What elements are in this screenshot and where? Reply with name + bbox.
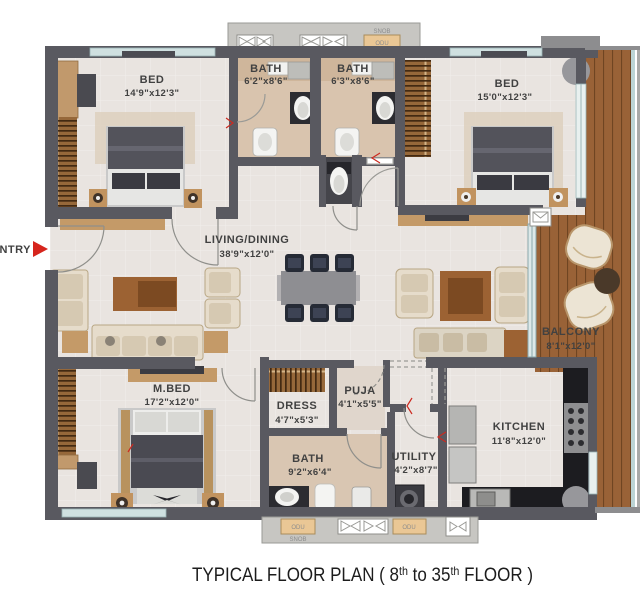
svg-text:LIVING/DINING: LIVING/DINING <box>205 234 290 246</box>
svg-text:38'9"x12'0": 38'9"x12'0" <box>220 249 275 260</box>
svg-text:M.BED: M.BED <box>153 383 191 395</box>
svg-text:15'0"x12'3": 15'0"x12'3" <box>478 92 533 103</box>
svg-text:4'2"x8'7": 4'2"x8'7" <box>394 465 438 476</box>
svg-text:11'8"x12'0": 11'8"x12'0" <box>492 436 546 447</box>
svg-text:BATH: BATH <box>337 63 369 75</box>
svg-text:6'2"x8'6": 6'2"x8'6" <box>244 76 288 87</box>
svg-text:4'7"x5'3": 4'7"x5'3" <box>275 415 319 426</box>
svg-text:8'1"x12'0": 8'1"x12'0" <box>546 341 595 352</box>
svg-text:PUJA: PUJA <box>344 385 375 397</box>
svg-text:UTILITY: UTILITY <box>391 451 436 463</box>
svg-text:DRESS: DRESS <box>277 400 317 412</box>
svg-text:BATH: BATH <box>292 453 324 465</box>
svg-text:BED: BED <box>495 78 520 90</box>
svg-text:6'3"x8'6": 6'3"x8'6" <box>331 76 375 87</box>
svg-text:14'9"x12'3": 14'9"x12'3" <box>125 88 180 99</box>
svg-text:4'1"x5'5": 4'1"x5'5" <box>338 399 382 410</box>
svg-text:17'2"x12'0": 17'2"x12'0" <box>145 397 200 408</box>
svg-text:SNOB: SNOB <box>289 537 306 543</box>
svg-text:9'2"x6'4": 9'2"x6'4" <box>288 467 332 478</box>
svg-text:ODU: ODU <box>402 525 415 531</box>
svg-text:TYPICAL FLOOR PLAN ( 8th to 35: TYPICAL FLOOR PLAN ( 8th to 35th FLOOR ) <box>192 564 533 586</box>
svg-text:BALCONY: BALCONY <box>542 326 600 338</box>
svg-text:SNOB: SNOB <box>373 29 390 35</box>
svg-text:KITCHEN: KITCHEN <box>493 421 545 433</box>
svg-text:BATH: BATH <box>250 63 282 75</box>
svg-text:ENTRY: ENTRY <box>0 244 31 256</box>
svg-text:ODU: ODU <box>291 525 304 531</box>
svg-text:BED: BED <box>140 74 165 86</box>
